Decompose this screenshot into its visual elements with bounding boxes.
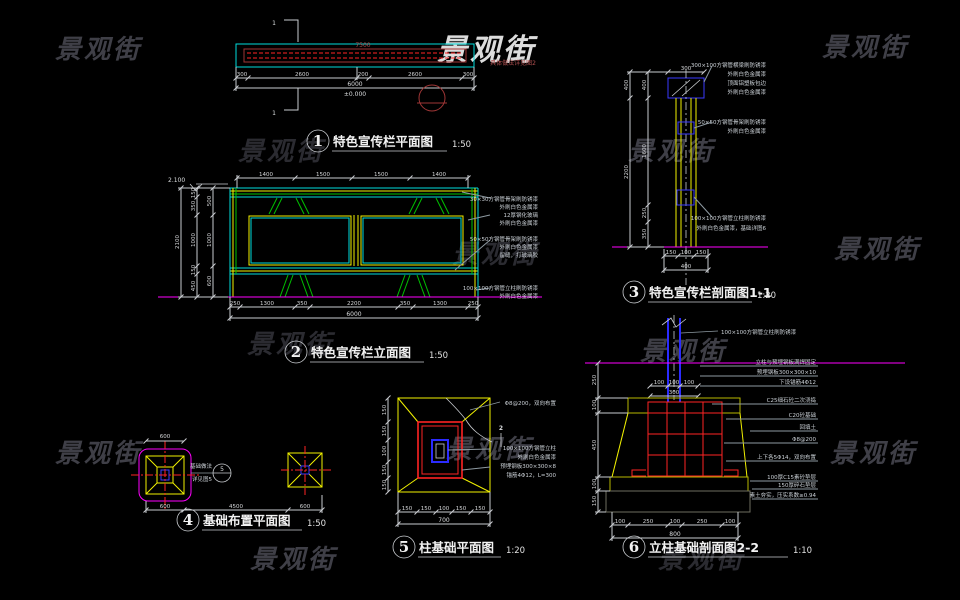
dim-label: 250	[697, 519, 708, 525]
concrete-cap	[628, 398, 740, 413]
gravel-layer	[606, 491, 750, 512]
dim-label: 600	[300, 504, 311, 510]
dim-label: 150	[696, 250, 707, 256]
note-label: 30×30方钢管骨架刷防锈漆	[470, 195, 539, 203]
dim-label: 100	[669, 380, 680, 386]
dim-label: 100	[654, 380, 665, 386]
note-label: 12厚钢化玻璃	[504, 211, 539, 219]
note-label: 外刷白色金属漆	[499, 243, 538, 251]
note-label: 预埋钢板300×300×10	[757, 368, 817, 376]
plan-board-inner	[244, 49, 466, 62]
callout-number: 5	[220, 466, 224, 473]
dim-label: 1000	[207, 233, 213, 247]
dim-label: 150	[456, 506, 467, 512]
dim-label: 100	[592, 399, 598, 410]
dim-label: 400	[624, 79, 630, 90]
dim-label: 250	[468, 301, 479, 307]
plan-post-blocks	[245, 50, 465, 61]
note-label: 100×100方钢管立柱刷防锈漆	[721, 328, 797, 336]
note-label: 100×100方钢管立柱刷防锈漆	[691, 214, 767, 222]
dim-label: 100	[592, 478, 598, 489]
title-block-1: 1 特色宣传栏平面图 1:50	[307, 130, 471, 152]
dim-label: 150	[475, 506, 486, 512]
title-label: 特色宣传栏立面图	[311, 345, 411, 360]
rebar-cage	[632, 402, 738, 476]
dim-total-label: 400	[681, 264, 692, 270]
column-foundation-plan: Φ8@200，双向布置 2 100×100方钢管立柱 外刷白色金属漆 预埋钢板3…	[382, 396, 556, 559]
dim-label: 1500	[316, 172, 330, 178]
datum-label: ±0.000	[344, 91, 366, 98]
cad-sheet: 景观街 景观街 景观街 景观街 景观街 景观街 景观街 景观街 景观街 景观街 …	[0, 0, 960, 600]
dim-label: 1400	[259, 172, 273, 178]
dim-label: 400	[642, 79, 648, 90]
watermark-text: 景观街	[250, 545, 339, 575]
dim-label: 150	[402, 506, 413, 512]
note-label: 外刷白色金属漆	[727, 127, 766, 135]
dim-label: 150	[191, 264, 197, 275]
dim-label: 1300	[260, 301, 274, 307]
note-label: 素土夯实，压实系数≥0.94	[750, 491, 817, 499]
dim-label: 100	[615, 519, 626, 525]
title-block-6: 6 立柱基础剖面图2-2 1:10	[623, 536, 812, 558]
dim-label: 600	[207, 275, 213, 286]
cut-mark-label: 2	[499, 425, 503, 432]
dim-label: 300	[237, 72, 248, 78]
note-label: 50×50方钢管骨架刷防锈漆	[698, 118, 767, 126]
dim-label: 250	[643, 519, 654, 525]
dim-label: 150	[191, 187, 197, 198]
upper-braces	[269, 198, 449, 214]
foundation-layout: 600 基础做法 详见图5 5 600 4500 600 4 基础布置平面图 1…	[131, 434, 331, 531]
cut-mark-label: 1	[272, 20, 276, 27]
dim-label: 450	[191, 280, 197, 291]
dim-label: 1300	[433, 301, 447, 307]
lean-concrete-layer	[610, 477, 748, 491]
dim-total-label: 6000	[347, 81, 362, 88]
dim-label: 150	[592, 495, 598, 506]
dim-label: 250	[642, 207, 648, 218]
dim-label: 150	[666, 250, 677, 256]
plan-side-note: 具体做法详见图2	[490, 59, 536, 67]
detail-callout: 基础做法 详见图5 5	[190, 462, 231, 483]
dim-label: 2600	[295, 72, 309, 78]
note-label: 预埋钢板300×300×8	[500, 462, 556, 470]
dim-label: 350	[642, 228, 648, 239]
note-label: 外刷白色金属漆	[499, 292, 538, 300]
watermark-text: 景观街	[822, 33, 911, 63]
dim-total-label: 2100	[175, 235, 181, 249]
dim-label: 100	[670, 519, 681, 525]
title-scale: 1:20	[757, 291, 776, 301]
dim-label: 350	[297, 301, 308, 307]
dim-label: 1000	[191, 233, 197, 247]
note-label: 立柱与预埋钢板满焊固定	[755, 358, 816, 366]
title-block-4: 4 基础布置平面图 1:50	[177, 509, 326, 531]
note-label: 上下各5Φ14，双向布置	[757, 453, 816, 461]
dim-label: 1500	[374, 172, 388, 178]
watermark-text: 景观街	[834, 235, 923, 265]
note-label: 300×100方钢管横梁刷防锈漆	[691, 61, 767, 69]
dim-label: 1400	[432, 172, 446, 178]
title-number: 6	[629, 538, 639, 556]
level-marker: 2.100	[168, 177, 228, 191]
dim-label: 150	[382, 425, 388, 436]
callout-text: 基础做法	[190, 462, 213, 470]
note-label: 回填土	[799, 423, 816, 431]
note-label: 外刷白色金属漆	[499, 219, 538, 227]
note-label: Φ8@200，双向布置	[505, 399, 557, 407]
poster-left	[249, 216, 351, 265]
note-label: 锚筋4Φ12，L=300	[507, 471, 557, 479]
note-label: 100×100方钢管立柱刷防锈漆	[463, 284, 539, 292]
dim-label: 350	[191, 200, 197, 211]
title-number: 2	[291, 343, 301, 361]
plan-dashed-rails	[247, 53, 463, 58]
note-label: 下设锚筋4Φ12	[779, 378, 816, 386]
leader-line	[470, 402, 500, 410]
note-label: 外刷白色金属漆	[517, 453, 556, 461]
dim-label: 2200	[347, 301, 361, 307]
dim-label: 4500	[229, 504, 243, 510]
title-scale: 1:50	[429, 351, 448, 361]
dim-label: 600	[160, 504, 171, 510]
north-arrow-icon	[417, 85, 447, 111]
footing-trapezoid	[612, 413, 747, 477]
title-scale: 1:10	[793, 546, 812, 556]
section-cut-marks	[284, 20, 298, 110]
left-dim-chains	[178, 186, 230, 300]
dim-label: 150	[421, 506, 432, 512]
dim-label: 100	[439, 506, 450, 512]
note-label: 100厚C15素砼垫层	[767, 473, 816, 481]
note-label: 50×50方钢管骨架刷防锈漆	[470, 235, 539, 243]
dim-label: 100	[681, 250, 692, 256]
dim-total-label: 300	[669, 390, 680, 396]
title-block-3: 3 特色宣传栏剖面图1-1 1:20	[623, 281, 776, 303]
note-label: 外刷白色金属漆，基础详图6	[696, 224, 766, 232]
note-label: 150厚碎石垫层	[778, 481, 816, 489]
dim-total-label: 700	[438, 517, 450, 524]
note-label: 留缝，打玻璃胶	[499, 251, 538, 259]
dim-label: 150	[382, 464, 388, 475]
section-view: 300 150 100 150 400	[612, 61, 776, 303]
dim-label: 600	[160, 434, 171, 440]
title-scale: 1:50	[307, 519, 326, 529]
title-label: 特色宣传栏平面图	[333, 134, 433, 149]
note-label: 顶面铝塑板包边	[727, 79, 766, 87]
watermark-text: 景观街	[830, 439, 919, 469]
dim-total-label: 800	[669, 531, 681, 538]
note-label: 100×100方钢管立柱	[503, 444, 557, 452]
dim-label: 1600	[642, 144, 648, 158]
note-label: Φ8@200	[792, 437, 816, 443]
note-label: 外刷白色金属漆	[727, 70, 766, 78]
dim-label: 100	[382, 445, 388, 456]
board-bottom-rails	[230, 268, 478, 274]
title-label: 基础布置平面图	[202, 513, 291, 528]
dim-label: 2200	[624, 165, 630, 179]
board-top-rails	[230, 188, 478, 197]
title-number: 5	[399, 538, 409, 556]
cut-mark-label: 1	[272, 110, 276, 117]
dim-label: 450	[592, 439, 598, 450]
leader-line	[681, 331, 718, 333]
dim-label: 350	[400, 301, 411, 307]
note-label: 外刷白色金属漆	[499, 203, 538, 211]
title-number: 4	[183, 511, 193, 529]
watermark-text: 景观街	[55, 35, 144, 65]
dim-label: 100	[725, 519, 736, 525]
board-side-posts	[230, 188, 478, 297]
lower-legs	[280, 275, 430, 297]
title-number: 3	[629, 283, 639, 301]
column-foundation-section: 100×100方钢管立柱刷防锈漆 100 100 100 300	[585, 315, 905, 558]
dim-label: 250	[230, 301, 241, 307]
callout-text: 详见图5	[192, 475, 213, 483]
dim-total-label: 6000	[346, 311, 361, 318]
title-scale: 1:50	[452, 140, 471, 150]
watermark-text: 景观街	[55, 439, 144, 469]
title-label: 柱基础平面图	[419, 540, 494, 555]
dim-label: 150	[382, 404, 388, 415]
dim-label: 300	[463, 72, 474, 78]
foundation-right	[281, 446, 331, 495]
title-label: 特色宣传栏剖面图1-1	[649, 285, 772, 300]
dim-label: 100	[684, 380, 695, 386]
title-block-5: 5 柱基础平面图 1:20	[393, 536, 525, 558]
dim-label: 200	[358, 72, 369, 78]
plan-board-label: 7500	[355, 42, 370, 49]
title-label: 立柱基础剖面图2-2	[649, 540, 759, 555]
level-label: 2.100	[168, 177, 185, 184]
title-number: 1	[313, 132, 323, 150]
note-label: 外刷白色金属漆	[727, 88, 766, 96]
dim-label: 2600	[408, 72, 422, 78]
title-scale: 1:20	[506, 546, 525, 556]
poster-right	[361, 216, 463, 265]
note-label: C20砼基础	[789, 411, 817, 419]
cad-drawing-canvas: 景观街 景观街 景观街 景观街 景观街 景观街 景观街 景观街 景观街 景观街 …	[0, 0, 960, 600]
dim-label: 150	[382, 479, 388, 490]
dim-label: 500	[207, 195, 213, 206]
dim-label: 250	[592, 374, 598, 385]
note-label: C25细石砼二次浇捣	[767, 396, 817, 404]
